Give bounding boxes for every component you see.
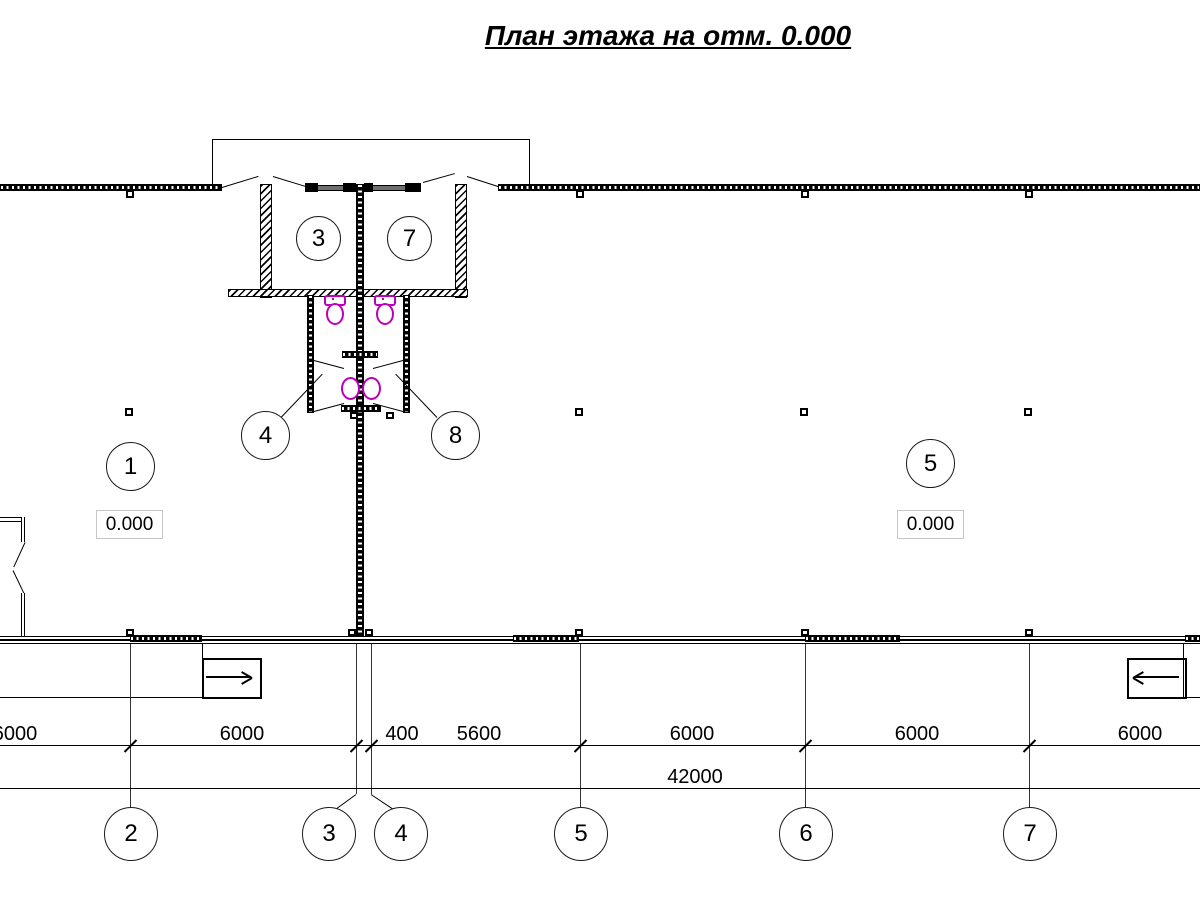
left-door-jamb-top — [21, 517, 25, 542]
wall-stub — [365, 629, 373, 636]
grid-axis-label: 2 — [124, 820, 137, 848]
wc-block-right-wall — [455, 184, 467, 298]
column-marker — [126, 190, 134, 198]
room-label: 3 — [312, 225, 325, 253]
room-bubble-7: 7 — [387, 216, 432, 261]
dimension-value: 6000 — [1098, 723, 1182, 746]
dimension-value: 6000 — [875, 723, 959, 746]
column-marker — [1024, 408, 1032, 416]
partition-wall-left — [307, 295, 314, 413]
canopy-outline — [212, 139, 530, 186]
cross-wall-lower — [341, 405, 381, 412]
cross-wall-upper — [342, 351, 378, 358]
grid-axis-label: 7 — [1023, 820, 1036, 848]
room-label: 1 — [124, 453, 137, 481]
sink-bowl — [341, 377, 360, 400]
grid-line-3 — [356, 644, 357, 794]
grid-line-2 — [130, 644, 131, 807]
grid-line-5 — [580, 644, 581, 807]
dimension-value: 6000 — [0, 723, 57, 746]
grid-line-7 — [1029, 644, 1030, 807]
dimension-line-total — [0, 788, 1200, 789]
column-marker — [801, 190, 809, 198]
room-label: 8 — [449, 422, 462, 450]
column-marker — [575, 408, 583, 416]
grid-bubble-7: 7 — [1003, 807, 1057, 861]
sink-bowl — [362, 377, 381, 400]
top-wall-right-segment — [498, 184, 1200, 191]
room-label: 5 — [924, 450, 937, 478]
dimension-value: 6000 — [200, 723, 284, 746]
porch-outline — [0, 697, 202, 698]
wc-block-left-wall — [260, 184, 272, 298]
door-leaf — [314, 360, 344, 369]
column-marker — [126, 629, 134, 636]
top-wall-left-segment — [0, 184, 222, 191]
grid-bubble-4: 4 — [374, 807, 428, 861]
column-marker — [125, 408, 133, 416]
room-label: 4 — [259, 422, 272, 450]
left-door-jamb-bottom — [21, 593, 25, 637]
wc-block-bottom-wall — [228, 289, 468, 297]
bottom-wall-glazing — [513, 635, 579, 642]
column-marker — [801, 629, 809, 636]
dimension-value: 6000 — [650, 723, 734, 746]
room-bubble-8: 8 — [431, 411, 480, 460]
grid-axis-label: 3 — [322, 820, 335, 848]
column-marker — [800, 408, 808, 416]
grid-line-6 — [805, 644, 806, 807]
grid-axis-label: 4 — [394, 820, 407, 848]
room-bubble-4: 4 — [241, 411, 290, 460]
elevation-value: 0.000 — [907, 514, 955, 536]
drawing-title: План этажа на отм. 0.000 — [418, 20, 918, 52]
grid-bubble-5: 5 — [554, 807, 608, 861]
toilet-detail — [382, 298, 384, 300]
dimension-value: 400 — [360, 723, 444, 746]
wall-stub — [350, 412, 358, 419]
wall-stub — [386, 412, 394, 419]
window-glass — [318, 185, 343, 191]
window-mullion — [364, 183, 373, 192]
door-leaf — [13, 570, 25, 594]
grid-axis-label: 6 — [799, 820, 812, 848]
window-glass — [373, 185, 405, 191]
room-bubble-3: 3 — [296, 216, 341, 261]
bottom-wall-glazing — [1185, 635, 1200, 642]
toilet-bowl — [326, 303, 344, 325]
grid-line-4 — [371, 644, 372, 794]
toilet-detail — [332, 298, 334, 300]
door-leaf — [373, 360, 403, 369]
column-marker — [575, 629, 583, 636]
entrance-arrow-right — [206, 676, 250, 678]
column-marker — [1025, 629, 1033, 636]
toilet-bowl — [376, 303, 394, 325]
window-mullion — [405, 183, 421, 192]
window-mullion — [305, 183, 318, 192]
grid-bubble-2: 2 — [104, 807, 158, 861]
bottom-wall-glazing — [805, 635, 900, 642]
partition-wall-right — [403, 295, 410, 413]
room-bubble-1: 1 — [106, 442, 155, 491]
dimension-value: 5600 — [437, 723, 521, 746]
entrance-arrow-left — [1135, 676, 1179, 678]
room-label: 7 — [403, 225, 416, 253]
entrance-landing-left — [202, 658, 262, 699]
dimension-line-intermediate — [0, 745, 1200, 746]
bottom-wall-glazing — [130, 635, 202, 642]
column-marker — [1025, 190, 1033, 198]
door-leaf — [314, 403, 344, 412]
elevation-value: 0.000 — [106, 514, 154, 536]
window-mullion — [343, 183, 356, 192]
elevation-mark-left: 0.000 — [96, 510, 163, 539]
room-bubble-5: 5 — [906, 439, 955, 488]
elevation-mark-right: 0.000 — [897, 510, 964, 539]
column-marker — [576, 190, 584, 198]
wall-stub — [348, 629, 356, 636]
grid-axis-label: 5 — [574, 820, 587, 848]
grid-bubble-3: 3 — [302, 807, 356, 861]
door-leaf — [13, 542, 25, 567]
floor-plan-canvas: План этажа на отм. 0.000 — [0, 0, 1200, 900]
grid-bubble-6: 6 — [779, 807, 833, 861]
dimension-total-value: 42000 — [653, 766, 737, 789]
